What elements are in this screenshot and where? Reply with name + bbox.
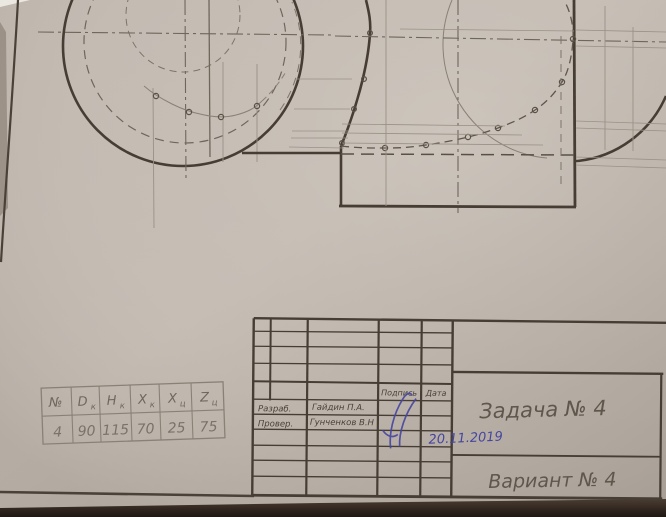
- variant-title: Вариант № 4: [488, 469, 617, 493]
- photographed-engineering-drawing: Подпись Дата Разраб. Гайдин П.А. Провер.…: [0, 0, 666, 517]
- paper-lighting: [0, 0, 666, 517]
- developed-name: Гайдин П.А.: [312, 403, 365, 413]
- table-header: Z: [199, 390, 211, 405]
- drawing-sheet: Подпись Дата Разраб. Гайдин П.А. Провер.…: [0, 0, 666, 517]
- table-header: D: [77, 395, 88, 410]
- date-header-label: Дата: [425, 389, 447, 398]
- stamp-border-left: [252, 318, 254, 495]
- paper-background: [0, 0, 666, 517]
- table-header-subscript: ц: [180, 399, 186, 409]
- table-value: 90: [77, 423, 95, 440]
- table-header: X: [167, 391, 179, 406]
- task-title: Задача № 4: [479, 396, 607, 423]
- checked-label: Провер.: [258, 419, 293, 429]
- stamp-column-line: [306, 319, 308, 496]
- table-header: H: [106, 394, 117, 409]
- table-value: 115: [102, 422, 129, 439]
- outline-right: [574, 0, 575, 207]
- stamp-column-line: [451, 320, 453, 497]
- checked-name: Гунченков В.Н: [310, 418, 375, 429]
- table-value: 25: [167, 420, 185, 437]
- stamp-border-right: [660, 374, 661, 499]
- table-header: №: [48, 395, 63, 410]
- table-value: 75: [199, 419, 217, 436]
- table-value: 70: [136, 421, 154, 438]
- developed-label: Разраб.: [258, 404, 291, 414]
- stamp-column-line: [420, 320, 422, 497]
- stamp-column-line: [377, 319, 379, 496]
- table-header: X: [137, 392, 149, 407]
- stamp-column-line: [270, 318, 271, 400]
- signature-header-label: Подпись: [381, 388, 417, 397]
- table-value: 4: [53, 424, 62, 440]
- table-header-subscript: ц: [212, 398, 218, 408]
- outline-bottom: [339, 206, 576, 207]
